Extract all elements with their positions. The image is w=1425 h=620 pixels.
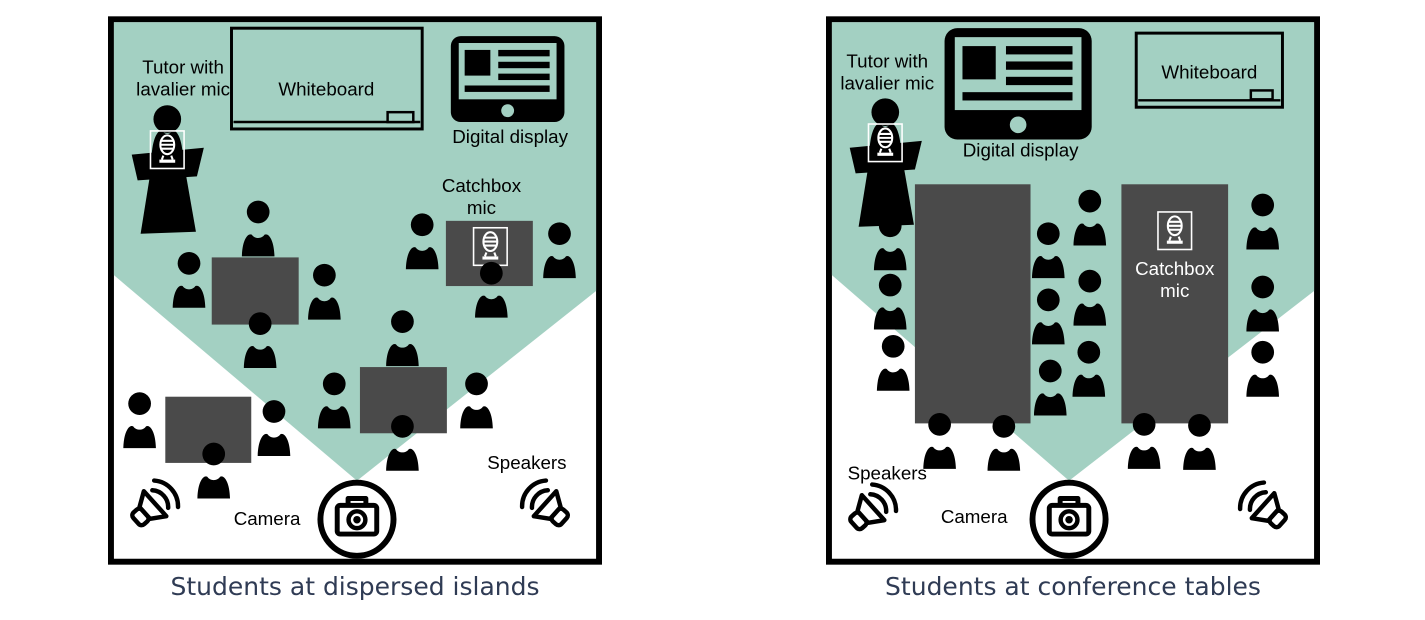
catchbox-label-line1: Catchbox (1135, 258, 1215, 279)
conference-table (915, 184, 1031, 423)
speakers-label: Speakers (487, 452, 566, 473)
camera-icon (320, 483, 393, 556)
camera-label: Camera (234, 508, 301, 529)
whiteboard-label: Whiteboard (1161, 62, 1257, 83)
digital-display-icon (945, 28, 1092, 139)
digital-display-label: Digital display (963, 140, 1079, 161)
catchbox-label-line1: Catchbox (442, 175, 522, 196)
tutor-label-line1: Tutor with (846, 51, 928, 72)
tutor-label-line2: lavalier mic (840, 72, 934, 93)
tutor-label-line2: lavalier mic (136, 78, 230, 99)
conference-table-catchbox (1121, 184, 1228, 423)
classroom-diagram-conference: Digital display Whiteboard Tutor with la… (826, 16, 1320, 565)
figure-conference-tables: Digital display Whiteboard Tutor with la… (826, 16, 1320, 601)
catchbox-label-line2: mic (467, 197, 496, 218)
catchbox-label-line2: mic (1160, 280, 1189, 301)
whiteboard-label: Whiteboard (278, 78, 374, 99)
classroom-diagram-islands: Whiteboard Digital display Tutor with la… (108, 16, 602, 565)
digital-display-icon (451, 36, 565, 122)
tutor-label-line1: Tutor with (142, 57, 224, 78)
camera-label: Camera (941, 506, 1008, 527)
camera-icon (1032, 483, 1105, 556)
figure-dispersed-islands: Whiteboard Digital display Tutor with la… (108, 16, 602, 601)
digital-display-label: Digital display (452, 126, 568, 147)
figure-caption: Students at conference tables (826, 572, 1320, 601)
speakers-label: Speakers (848, 463, 927, 484)
figure-caption: Students at dispersed islands (108, 572, 602, 601)
